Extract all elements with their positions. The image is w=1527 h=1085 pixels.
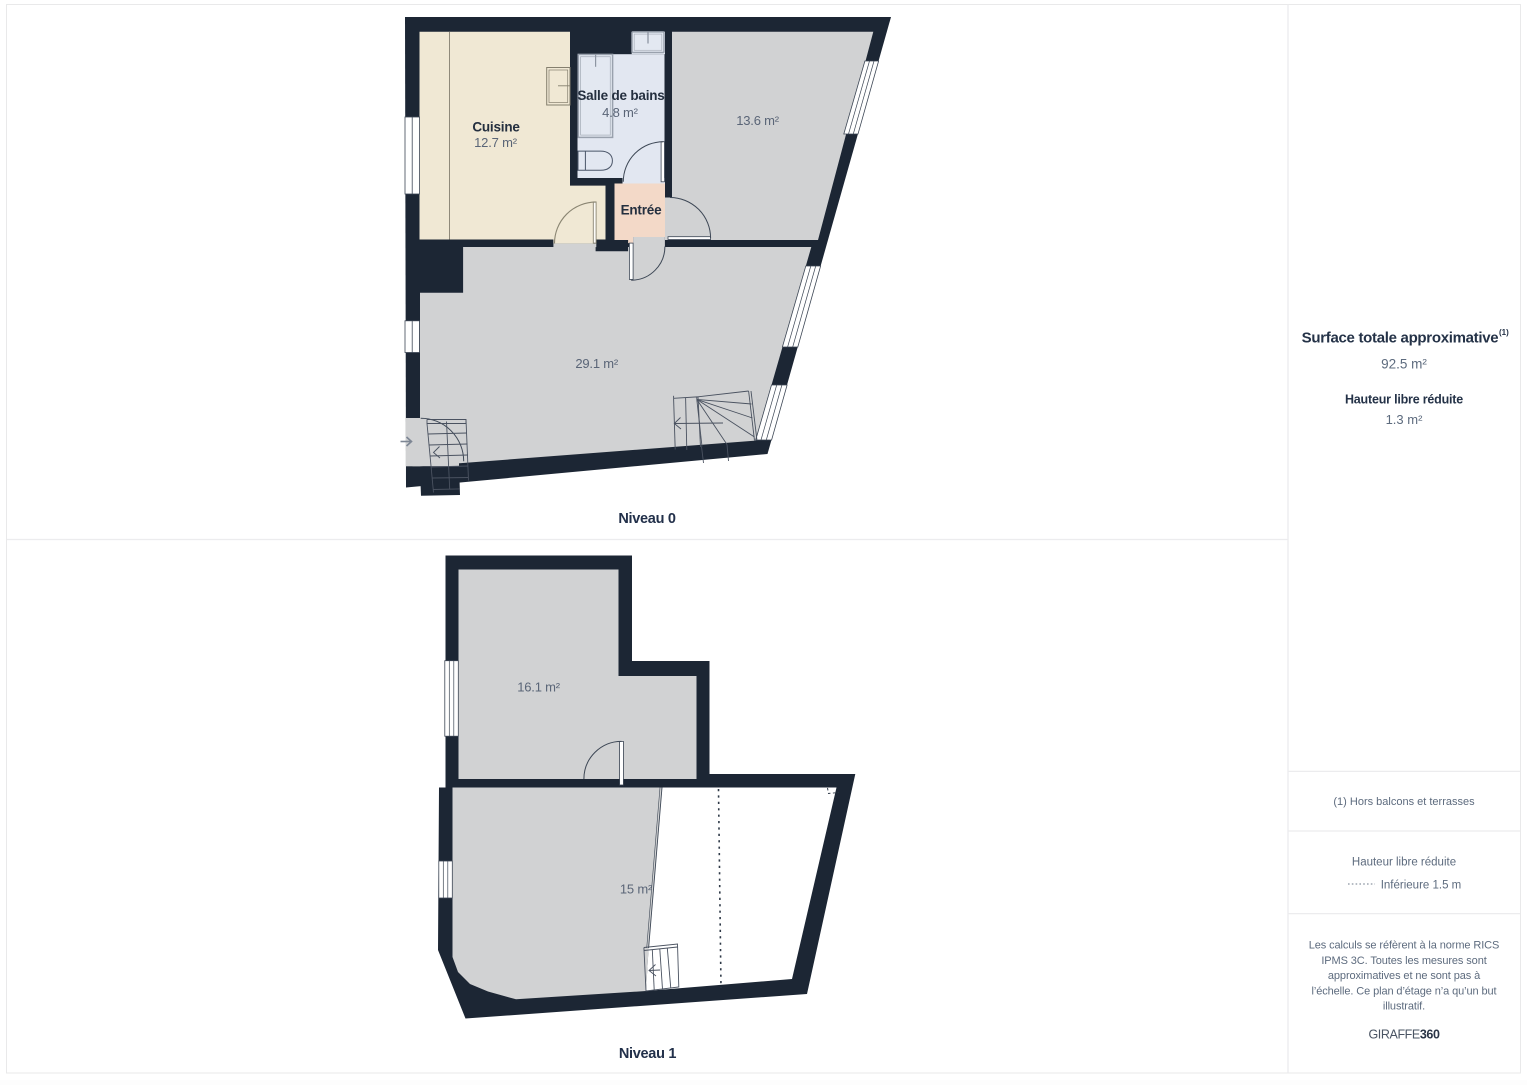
- svg-text:16.1 m²: 16.1 m²: [517, 680, 561, 695]
- svg-text:GIRAFFE360: GIRAFFE360: [1368, 1028, 1439, 1042]
- svg-text:(1) Hors balcons et terrasses: (1) Hors balcons et terrasses: [1333, 796, 1475, 808]
- svg-text:Entrée: Entrée: [621, 203, 663, 218]
- svg-text:4.8 m²: 4.8 m²: [602, 105, 639, 120]
- svg-text:15 m²: 15 m²: [620, 882, 653, 897]
- svg-text:l’échelle. Ce plan d’étage n’a: l’échelle. Ce plan d’étage n’a qu’un but: [1312, 985, 1497, 997]
- svg-text:(1): (1): [1499, 328, 1509, 337]
- svg-text:Surface totale approximative: Surface totale approximative: [1302, 330, 1499, 347]
- svg-text:Hauteur libre réduite: Hauteur libre réduite: [1345, 393, 1463, 407]
- svg-text:Cuisine: Cuisine: [472, 120, 520, 135]
- svg-text:Hauteur libre réduite: Hauteur libre réduite: [1352, 857, 1456, 869]
- svg-text:13.6 m²: 13.6 m²: [736, 113, 780, 128]
- svg-text:Niveau 0: Niveau 0: [618, 511, 675, 527]
- svg-text:12.7 m²: 12.7 m²: [474, 135, 518, 150]
- svg-text:illustratif.: illustratif.: [1383, 1001, 1425, 1013]
- svg-text:Inférieure 1.5 m: Inférieure 1.5 m: [1381, 880, 1462, 892]
- svg-text:Les calculs se réfèrent à la n: Les calculs se réfèrent à la norme RICS: [1309, 940, 1500, 952]
- svg-text:92.5 m²: 92.5 m²: [1381, 357, 1427, 372]
- svg-text:29.1 m²: 29.1 m²: [575, 356, 619, 371]
- svg-text:1.3 m²: 1.3 m²: [1386, 412, 1424, 427]
- svg-text:IPMS 3C. Toutes les mesures so: IPMS 3C. Toutes les mesures sont: [1321, 955, 1486, 967]
- svg-text:approximatives et ne sont pas: approximatives et ne sont pas à: [1328, 970, 1481, 982]
- svg-text:Salle de bains: Salle de bains: [577, 88, 664, 103]
- svg-text:Niveau 1: Niveau 1: [619, 1046, 676, 1062]
